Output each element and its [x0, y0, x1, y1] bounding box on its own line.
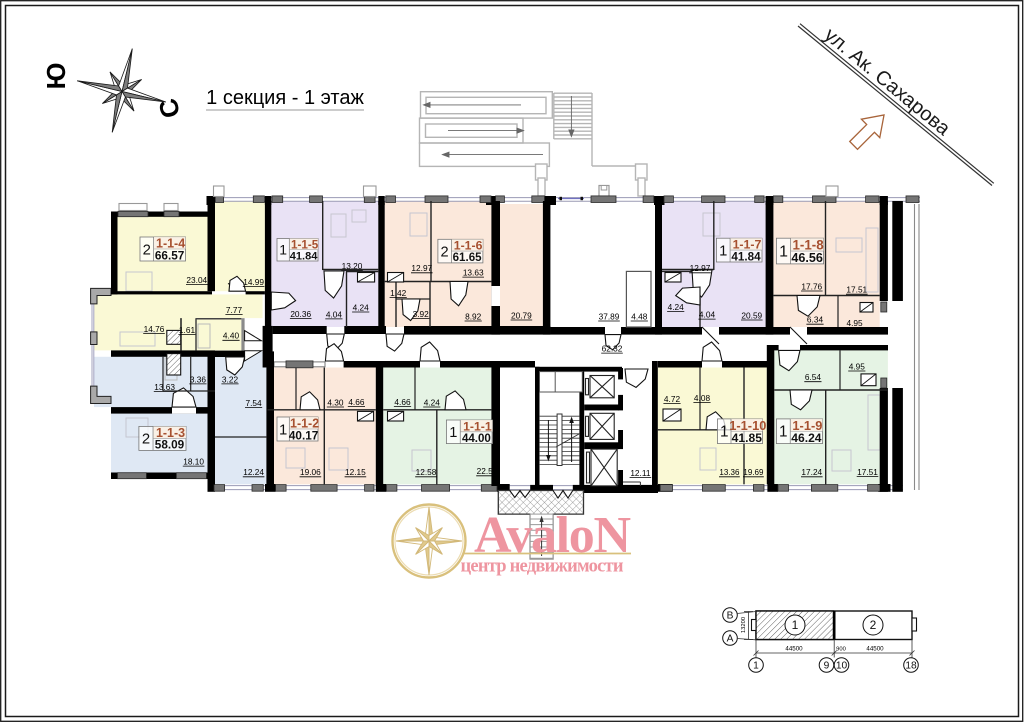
svg-text:2: 2 — [870, 618, 877, 632]
svg-text:3.36: 3.36 — [190, 374, 207, 384]
svg-text:1 секция - 1 этаж: 1 секция - 1 этаж — [206, 87, 364, 109]
svg-text:Ю: Ю — [41, 63, 71, 90]
svg-text:2: 2 — [143, 242, 151, 258]
svg-text:4.72: 4.72 — [664, 394, 681, 404]
svg-text:4.24: 4.24 — [353, 302, 370, 312]
svg-text:В: В — [727, 611, 734, 622]
svg-text:1: 1 — [779, 424, 788, 441]
svg-text:13.63: 13.63 — [154, 382, 175, 392]
svg-text:22.52: 22.52 — [477, 466, 498, 476]
svg-text:20.59: 20.59 — [741, 310, 762, 320]
svg-text:41.84: 41.84 — [731, 250, 761, 263]
svg-text:3.92: 3.92 — [413, 309, 430, 319]
svg-text:1-1-1: 1-1-1 — [463, 419, 492, 433]
svg-text:44.00: 44.00 — [462, 433, 491, 445]
svg-text:17.76: 17.76 — [801, 281, 822, 291]
svg-text:3.22: 3.22 — [222, 374, 239, 384]
svg-text:44500: 44500 — [866, 646, 884, 653]
svg-text:13.63: 13.63 — [463, 268, 484, 278]
svg-text:66.57: 66.57 — [155, 249, 185, 262]
svg-text:8.92: 8.92 — [465, 311, 482, 321]
svg-text:1.42: 1.42 — [390, 288, 407, 298]
svg-text:4.66: 4.66 — [394, 397, 411, 407]
svg-text:4.08: 4.08 — [694, 393, 711, 403]
svg-text:41.84: 41.84 — [290, 250, 318, 262]
svg-text:13200: 13200 — [741, 617, 747, 633]
svg-text:4.24: 4.24 — [668, 302, 685, 312]
svg-text:44500: 44500 — [785, 646, 803, 653]
svg-text:46.56: 46.56 — [791, 251, 822, 265]
svg-text:1: 1 — [792, 618, 799, 632]
svg-text:17.51: 17.51 — [857, 467, 878, 477]
svg-text:А: А — [727, 634, 734, 645]
svg-text:1.61: 1.61 — [179, 325, 196, 335]
svg-text:1-1-6: 1-1-6 — [454, 239, 483, 253]
svg-text:10: 10 — [836, 661, 848, 672]
svg-text:40.17: 40.17 — [289, 429, 319, 442]
svg-text:центр недвижимости: центр недвижимости — [461, 557, 624, 577]
svg-text:12.24: 12.24 — [243, 467, 264, 477]
svg-text:19.69: 19.69 — [743, 468, 764, 477]
svg-text:4.48: 4.48 — [631, 311, 648, 321]
svg-text:58.09: 58.09 — [155, 439, 185, 452]
svg-text:6.34: 6.34 — [807, 315, 824, 325]
svg-text:4.24: 4.24 — [424, 397, 441, 407]
svg-text:4.66: 4.66 — [348, 397, 365, 407]
svg-text:4.04: 4.04 — [699, 310, 716, 320]
svg-text:2: 2 — [441, 244, 449, 260]
svg-text:1: 1 — [753, 661, 759, 672]
svg-text:4.40: 4.40 — [223, 331, 240, 341]
svg-text:4.30: 4.30 — [327, 397, 344, 407]
svg-text:18.10: 18.10 — [183, 457, 204, 467]
svg-text:1: 1 — [279, 242, 287, 258]
svg-text:41.85: 41.85 — [732, 431, 763, 445]
svg-text:23.04: 23.04 — [186, 275, 207, 285]
svg-text:1: 1 — [719, 243, 727, 259]
svg-text:13.20: 13.20 — [342, 261, 363, 271]
svg-text:37.89: 37.89 — [599, 311, 620, 321]
svg-text:13.36: 13.36 — [719, 468, 740, 477]
svg-text:4.04: 4.04 — [326, 309, 343, 319]
svg-text:12.15: 12.15 — [345, 467, 366, 477]
svg-text:7.77: 7.77 — [226, 305, 243, 315]
svg-text:18: 18 — [905, 661, 917, 672]
svg-text:17.51: 17.51 — [846, 285, 867, 295]
svg-text:12.97: 12.97 — [690, 263, 711, 273]
svg-text:4.95: 4.95 — [849, 361, 866, 371]
svg-text:6.54: 6.54 — [805, 372, 822, 382]
svg-text:61.65: 61.65 — [453, 252, 482, 264]
svg-text:46.24: 46.24 — [791, 431, 822, 445]
svg-text:2: 2 — [142, 432, 150, 448]
svg-text:19.06: 19.06 — [300, 467, 321, 477]
svg-text:14.76: 14.76 — [144, 324, 165, 334]
svg-text:7.54: 7.54 — [246, 398, 263, 408]
svg-text:20.36: 20.36 — [290, 309, 311, 319]
svg-text:17.24: 17.24 — [801, 467, 822, 477]
svg-text:12.58: 12.58 — [416, 467, 437, 477]
svg-text:1: 1 — [720, 424, 729, 441]
svg-text:9: 9 — [824, 661, 830, 672]
svg-text:62.32: 62.32 — [602, 344, 623, 354]
svg-text:1: 1 — [449, 425, 457, 441]
svg-text:AvaloN: AvaloN — [474, 507, 631, 564]
svg-text:14.99: 14.99 — [243, 277, 264, 287]
svg-text:1: 1 — [779, 244, 788, 261]
svg-text:900: 900 — [836, 647, 846, 653]
svg-text:1: 1 — [279, 422, 287, 438]
svg-text:20.79: 20.79 — [511, 310, 532, 320]
svg-text:12.97: 12.97 — [411, 263, 432, 273]
svg-text:12.11: 12.11 — [630, 468, 651, 478]
svg-text:4.95: 4.95 — [847, 318, 864, 328]
